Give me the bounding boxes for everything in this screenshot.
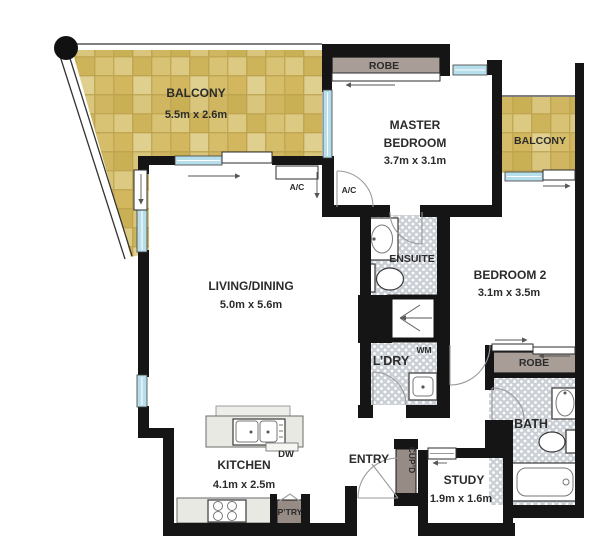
- bedroom-2-dims: 3.1m x 3.5m: [478, 287, 541, 299]
- ensuite-toilet: [377, 268, 404, 290]
- master-label-2: BEDROOM: [384, 136, 447, 150]
- pantry-label: P’TRY: [278, 507, 303, 517]
- balcony-1-tiles: [72, 50, 322, 257]
- balcony-2-label: BALCONY: [514, 135, 566, 147]
- balcony2-slider-panel: [543, 170, 575, 180]
- bedroom2-robe-track-2: [533, 347, 575, 354]
- ac-unit: [276, 166, 318, 179]
- study-dims: 1.9m x 1.6m: [430, 493, 493, 505]
- living-label: LIVING/DINING: [208, 279, 293, 293]
- entry-label: ENTRY: [349, 452, 389, 466]
- ac-cupboard-label: A/C: [342, 185, 357, 195]
- kitchen-dims: 4.1m x 2.5m: [213, 479, 276, 491]
- master-dims: 3.7m x 3.1m: [384, 155, 447, 167]
- column: [54, 36, 78, 60]
- balcony-1-dims: 5.5m x 2.6m: [165, 109, 228, 121]
- master-label-1: MASTER: [390, 118, 441, 132]
- laundry-label: L’DRY: [373, 354, 410, 368]
- bath-toilet: [539, 432, 565, 452]
- floor-plan: BALCONY 5.5m x 2.6m MASTER BEDROOM 3.7m …: [0, 0, 600, 544]
- bedroom2-robe-track-1: [492, 344, 533, 351]
- master-robe-label: ROBE: [369, 60, 399, 72]
- left-slider-panel: [134, 170, 147, 210]
- bedroom-2-label: BEDROOM 2: [474, 268, 547, 282]
- shower: [390, 297, 436, 340]
- cupboard-label: CUP’D: [407, 447, 417, 473]
- living-dims: 5.0m x 5.6m: [220, 299, 283, 311]
- kitchen-label: KITCHEN: [217, 458, 270, 472]
- island-shelf: [216, 406, 290, 417]
- balcony-1-label: BALCONY: [166, 86, 225, 100]
- master-robe-track: [332, 73, 440, 81]
- cooktop: [208, 500, 246, 522]
- dishwasher-label: DW: [278, 449, 294, 460]
- washing-machine-label: WM: [416, 345, 431, 355]
- bath-label: BATH: [514, 417, 548, 431]
- balcony-top-left: [54, 36, 322, 259]
- bedroom2-robe-label: ROBE: [519, 357, 549, 369]
- ensuite-label: ENSUITE: [389, 253, 435, 265]
- ac-unit-label: A/C: [290, 182, 305, 192]
- laundry-fixtures: [409, 373, 437, 400]
- living-slider-panel: [222, 152, 272, 163]
- bedroom2-door: [450, 345, 490, 385]
- study-label: STUDY: [444, 473, 485, 487]
